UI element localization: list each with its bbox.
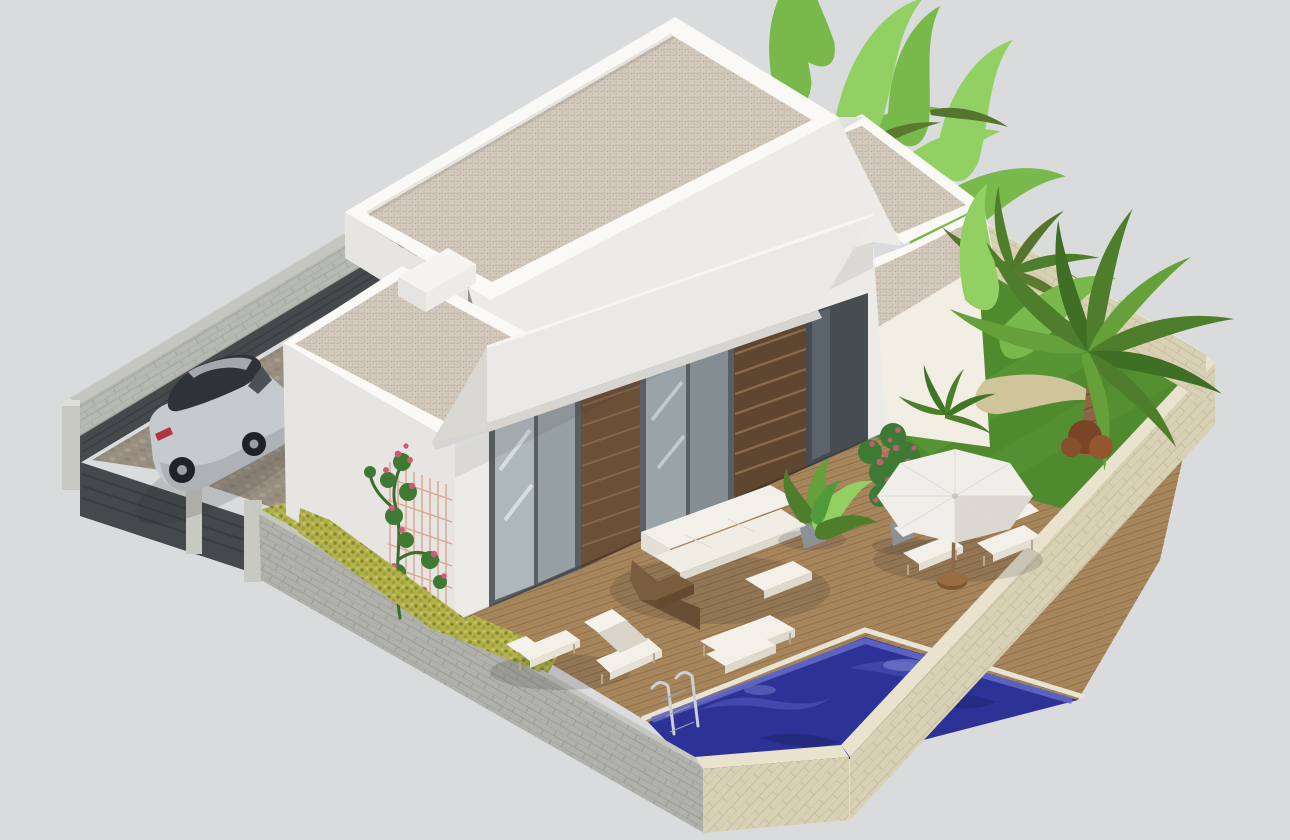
perimeter-wall-corner	[695, 745, 849, 833]
render-viewport	[0, 0, 1290, 840]
villa-render	[0, 0, 1290, 840]
